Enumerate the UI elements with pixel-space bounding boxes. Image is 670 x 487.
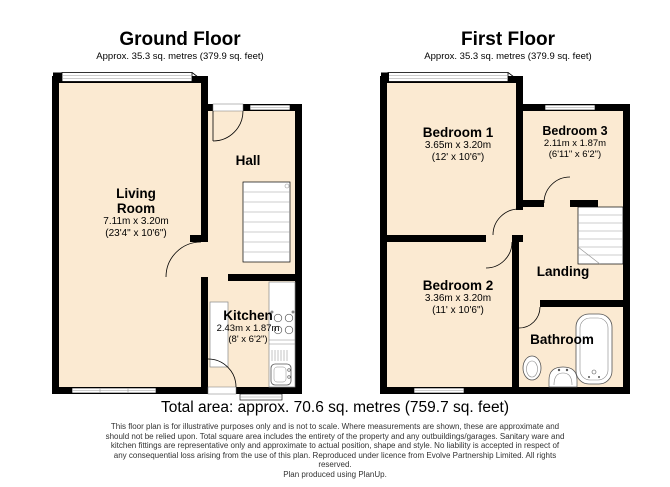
hall-window	[250, 105, 290, 110]
wall-bedroom3-bottom-right	[570, 200, 598, 207]
wall-bedroom-divider	[387, 235, 486, 242]
first-floor-header: First Floor Approx. 35.3 sq. metres (379…	[378, 30, 638, 63]
wall-kitchen-top	[228, 274, 295, 281]
toilet	[523, 356, 541, 380]
footer: Total area: approx. 70.6 sq. metres (759…	[0, 399, 670, 480]
bedroom3-window	[545, 105, 595, 110]
stairs	[578, 207, 623, 264]
disclaimer-text: This floor plan is for illustrative purp…	[104, 422, 566, 470]
first-floor-subtitle: Approx. 35.3 sq. metres (379.9 sq. feet)	[378, 51, 638, 63]
kitchen-worktop-left	[210, 302, 228, 367]
living-room-window	[72, 388, 156, 393]
bedroom2-window	[414, 388, 464, 393]
wall-living-kitchen-divider	[201, 277, 208, 387]
wall-bedroom2-right	[512, 242, 519, 387]
wall-bathroom-top	[540, 300, 623, 307]
floorplan-page: Ground Floor Approx. 35.3 sq. metres (37…	[0, 0, 670, 487]
wall-left	[52, 76, 59, 394]
ground-floor-title: Ground Floor	[50, 30, 310, 50]
wall-bedroom1-3-divider	[516, 111, 523, 210]
stairs	[243, 182, 290, 262]
bathtub	[576, 314, 612, 384]
wall-bedroom3-bottom-left	[516, 200, 544, 207]
bay-window	[381, 73, 522, 84]
first-floor-plan	[378, 72, 638, 402]
total-area-text: Total area: approx. 70.6 sq. metres (759…	[0, 399, 670, 417]
wall-left	[380, 76, 387, 394]
first-floor-title: First Floor	[378, 30, 638, 50]
ground-floor-header: Ground Floor Approx. 35.3 sq. metres (37…	[50, 30, 310, 63]
wall-stub	[190, 235, 208, 242]
sink	[271, 364, 291, 385]
wall-right	[295, 104, 302, 394]
ground-floor-subtitle: Approx. 35.3 sq. metres (379.9 sq. feet)	[50, 51, 310, 63]
basin	[549, 367, 577, 387]
ground-floor-plan	[50, 72, 310, 402]
bay-window	[53, 73, 206, 84]
wall-living-hall-divider	[201, 111, 208, 242]
produced-by-text: Plan produced using PlanUp.	[0, 470, 670, 480]
wall-right	[623, 104, 630, 394]
wall-stub	[512, 235, 523, 242]
